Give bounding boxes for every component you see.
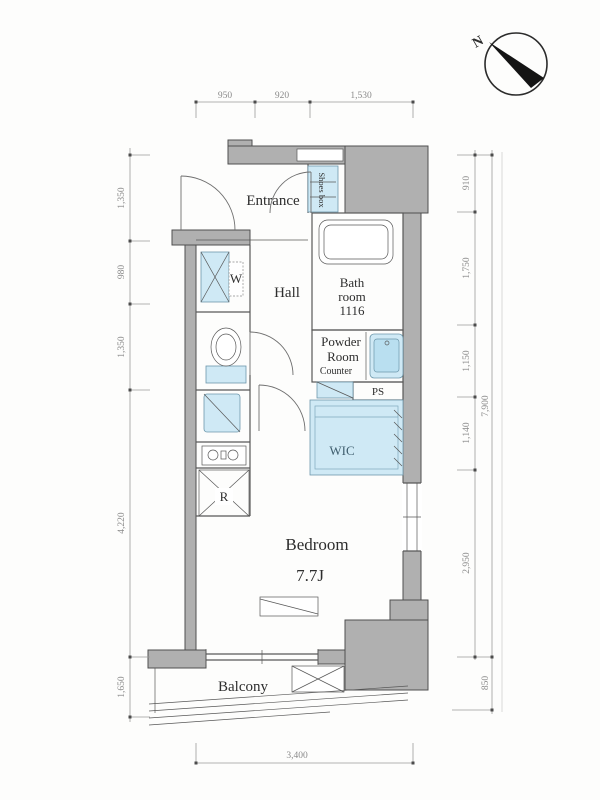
wall-balcony-mid [318, 650, 345, 664]
toilet-tank [206, 366, 246, 383]
hall-label: Hall [274, 285, 300, 301]
floor-plan-page: N [0, 0, 600, 800]
dim-tick [412, 101, 415, 104]
refrigerator-label: R [220, 489, 229, 504]
dimension-top: 950 920 1,530 [195, 91, 415, 118]
dim-right-2: 1,150 [462, 350, 472, 372]
compass: N [470, 33, 547, 95]
dim-right-4: 2,950 [462, 552, 472, 574]
dim-left-3: 4,220 [117, 512, 127, 534]
dimension-left: 1,350 980 1,350 4,220 1,650 [117, 148, 150, 722]
compass-needle-icon [489, 42, 544, 88]
toilet-door-arc [250, 332, 293, 375]
balcony-slant-3 [149, 700, 408, 718]
dim-left-1: 980 [117, 265, 127, 280]
dim-tick [474, 656, 477, 659]
powder-label-2: Room [327, 349, 359, 364]
dim-tick [129, 303, 132, 306]
dim-tick [129, 656, 132, 659]
dim-bottom: 3,400 [286, 751, 308, 761]
bathroom-label-3: 1116 [339, 303, 365, 318]
dim-tick [309, 101, 312, 104]
entrance-door-arc [181, 176, 235, 230]
dim-tick [474, 324, 477, 327]
balcony-slant-4 [149, 712, 330, 725]
dim-right-1: 1,750 [462, 257, 472, 279]
wall-right-upper [403, 213, 421, 483]
dim-right-balcony: 850 [481, 676, 491, 691]
balcony-slant-1 [149, 686, 408, 704]
powder-label-1: Powder [321, 334, 361, 349]
dim-tick [491, 154, 494, 157]
bathroom-label-1: Bath [340, 275, 365, 290]
dim-right-total: 7,900 [481, 395, 491, 417]
wic-area [310, 400, 403, 475]
top-wall-window [297, 149, 343, 161]
wall-right-lower [403, 551, 421, 600]
dimension-right: 910 1,750 1,150 1,140 2,950 7,900 850 [452, 150, 502, 714]
bedroom-size-label: 7.7J [296, 566, 324, 585]
dim-tick [474, 154, 477, 157]
dim-top-1: 920 [275, 91, 290, 101]
dim-top-0: 950 [218, 91, 233, 101]
dim-top-2: 1,530 [350, 91, 372, 101]
dim-tick [129, 389, 132, 392]
doors [181, 172, 311, 431]
wall-bottom-right-block [345, 620, 428, 690]
compass-north-label: N [470, 33, 486, 51]
dim-tick [474, 396, 477, 399]
wall-right-step [390, 600, 428, 620]
wall-top-right-block [345, 146, 428, 213]
dim-tick [412, 762, 415, 765]
floor-plan-drawing: N [0, 0, 600, 800]
bathtub [319, 220, 393, 264]
stove [202, 446, 246, 465]
dim-tick [474, 469, 477, 472]
wall-left [185, 245, 196, 652]
powder-sink-basin [374, 339, 399, 372]
counter-label: Counter [320, 366, 353, 377]
pipe-space-label: PS [372, 386, 384, 398]
entrance-label: Entrance [246, 193, 300, 209]
bedroom-label: Bedroom [285, 535, 348, 554]
dim-right-3: 1,140 [462, 422, 472, 444]
dim-tick [129, 716, 132, 719]
dim-tick [129, 154, 132, 157]
dim-tick [254, 101, 257, 104]
wic-label: WIC [329, 443, 354, 458]
dim-tick [491, 656, 494, 659]
dim-tick [195, 762, 198, 765]
dim-left-2: 1,350 [117, 336, 127, 358]
dim-tick [474, 211, 477, 214]
balcony-label: Balcony [218, 679, 268, 695]
balcony-slant-2 [149, 693, 408, 711]
bathroom-label-2: room [338, 289, 365, 304]
wall-balcony-left-stub [148, 650, 206, 668]
wall-entrance-stub [172, 230, 250, 245]
dimension-bottom: 3,400 [195, 743, 415, 765]
dim-tick [129, 240, 132, 243]
dim-right-0: 910 [462, 176, 472, 191]
bedroom-door-arc [259, 385, 305, 431]
shoes-box-label: Shoes box [317, 172, 327, 208]
dim-left-4: 1,650 [117, 676, 127, 698]
dim-tick [491, 709, 494, 712]
dim-left-0: 1,350 [117, 187, 127, 209]
washer-label: W [230, 271, 243, 286]
dim-tick [195, 101, 198, 104]
